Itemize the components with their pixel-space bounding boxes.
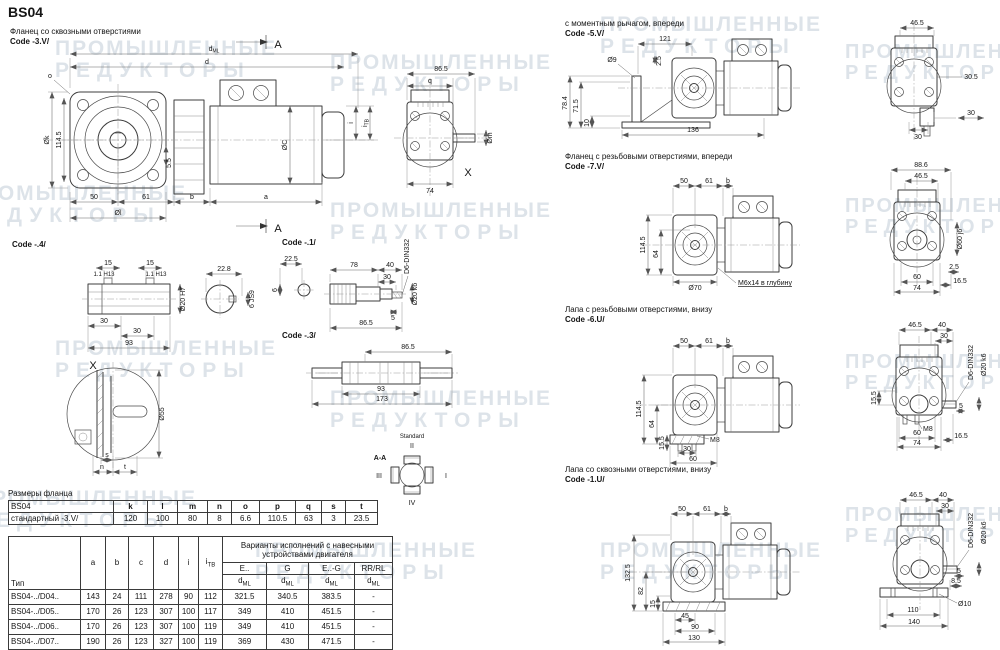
flange-h-o: o [232, 501, 260, 513]
dim-30: 30 [940, 333, 948, 340]
note-m6x14: М6х14 в глубину [738, 279, 792, 287]
cell-i: 90 [179, 589, 199, 604]
drawing-code-4: 15 1.1 H13 15 1.1 H13 30 30 93 Ø20 H7 22… [8, 252, 273, 362]
col-type-header: Тип [9, 537, 81, 590]
dim-6js9: 6 JS9 [249, 290, 256, 308]
dim-d: d [205, 59, 209, 66]
drawing-7v-end: 88.6 46.5 Ø60 j6 2.5 60 16.5 74 [855, 160, 1000, 295]
section-cut-marks [236, 35, 268, 233]
section-5v-title: с моментным рычагом, впереди [565, 19, 684, 29]
dim-86-5: 86.5 [359, 320, 373, 327]
dim-t: t [124, 464, 126, 471]
flange-table-title: Размеры фланца [8, 489, 72, 499]
flange-cell-name: стандартный -3.V/ [9, 513, 114, 525]
dim-15: 15 [650, 600, 657, 608]
detail-x-label: X [464, 167, 472, 179]
flange-h-q: q [296, 501, 322, 513]
cell-i: 100 [179, 604, 199, 619]
section-1u-title: Лапа со сквозными отверстиями, внизу [565, 465, 711, 475]
cell-type: BS04-../D04.. [9, 589, 81, 604]
cell-b: 26 [106, 619, 129, 634]
dim-5: 5 [391, 315, 395, 322]
cell-itb: 117 [199, 604, 223, 619]
table-header-row-1: Тип a b c d i iTB Варианты исполнений с … [9, 537, 393, 563]
dim-15-right: 15 [146, 260, 154, 267]
dim-61: 61 [703, 506, 711, 513]
dim-74: 74 [913, 440, 921, 447]
shaft-end-section [294, 280, 314, 300]
flange-cell-p: 110.5 [260, 513, 296, 525]
cell-g: 340.5 [267, 589, 309, 604]
flange-cell-m: 80 [178, 513, 208, 525]
cell-b: 26 [106, 604, 129, 619]
end-view-7v [890, 178, 944, 288]
aa-cross-view [391, 456, 433, 494]
table-row: BS04-../D06.. 170 26 123 307 100 119 349… [9, 619, 393, 634]
dim-b: b [726, 338, 730, 345]
flange-h-k: k [114, 501, 148, 513]
col-e-header: E.. [223, 563, 267, 575]
dim-50: 50 [680, 178, 688, 185]
dim-30: 30 [683, 446, 691, 453]
cell-a: 170 [81, 604, 106, 619]
dim-m8: M8 [710, 437, 720, 444]
col-e-dml: dML [223, 575, 267, 590]
gearmotor-view-7v [640, 196, 800, 275]
variants-header-line1: Варианты исполнений с навесными [225, 541, 390, 550]
detail-x-label: X [89, 360, 97, 372]
dim-173: 173 [376, 396, 388, 403]
col-d-header: d [154, 537, 179, 590]
dim-m8: M8 [923, 426, 933, 433]
dim-o60j6: Ø60 j6 [957, 229, 964, 250]
dim-o55: Ø55 [159, 407, 166, 420]
gearbox-motor-side-view [46, 80, 380, 194]
flange-cell-t: 23.5 [346, 513, 378, 525]
dim-22-5: 22.5 [284, 256, 298, 263]
dim-15-5: 15.5 [871, 391, 878, 405]
drawing-code-3: 86.5 93 173 [272, 344, 457, 406]
cell-itb: 112 [199, 589, 223, 604]
flange-h-l: l [148, 501, 178, 513]
flange-h-s: s [322, 501, 346, 513]
table-row: BS04-../D05.. 170 26 123 307 100 117 349… [9, 604, 393, 619]
drawing-6u-main: 50 61 b 114.5 64 15.5 M8 30 60 [560, 320, 810, 460]
dim-78-4: 78.4 [562, 96, 569, 110]
cell-itb: 119 [199, 619, 223, 634]
dim-90: 90 [691, 624, 699, 631]
flange-data-row: стандартный -3.V/ 120 100 80 8 6.6 110.5… [9, 513, 378, 525]
dim-46-5: 46.5 [910, 20, 924, 27]
dim-5-5: 5.5 [166, 158, 173, 168]
col-c-header: c [129, 537, 154, 590]
aa-position-2: II [410, 443, 414, 450]
cell-d: 307 [154, 604, 179, 619]
dim-30-b: 30 [133, 328, 141, 335]
flange-h-n: n [208, 501, 232, 513]
dim-15-left: 15 [104, 260, 112, 267]
cell-eg: 451.5 [309, 619, 355, 634]
catalog-page: { "page": {"title": "BS04", "wm1": "ПРОМ… [0, 0, 1000, 647]
dim-93: 93 [125, 340, 133, 347]
dim-15-5: 15.5 [659, 436, 666, 450]
dim-60: 60 [689, 456, 697, 463]
section-1-code: Code -.1/ [282, 238, 316, 248]
cell-eg: 451.5 [309, 604, 355, 619]
col-eg-dml: dML [309, 575, 355, 590]
dim-q: q [428, 78, 432, 85]
dim-6: 6 [272, 288, 279, 292]
dim-ol: Øl [115, 210, 122, 217]
cell-e: 349 [223, 619, 267, 634]
variants-header-line2: устройствами двигателя [225, 550, 390, 559]
cell-a: 143 [81, 589, 106, 604]
cell-rr: - [355, 619, 393, 634]
dim-o20k6: Ø20 k6 [981, 353, 988, 376]
variants-header: Варианты исполнений с навесными устройст… [223, 537, 393, 563]
dim-78: 78 [350, 262, 358, 269]
dim-din332: D6-DIN332 [968, 513, 975, 548]
cell-a: 170 [81, 619, 106, 634]
end-view-3v [394, 78, 488, 196]
flange-h-bs04: BS04 [9, 501, 114, 513]
dim-din332: D6-DIN332 [968, 345, 975, 380]
cell-c: 111 [129, 589, 154, 604]
shaft-section-view [201, 280, 239, 318]
col-rr-header: RR/RL [355, 563, 393, 575]
dim-64: 64 [653, 250, 660, 258]
col-itb-header: iTB [199, 537, 223, 590]
dim-om: Øm [487, 132, 494, 143]
col-rr-dml: dML [355, 575, 393, 590]
col-eg-header: E..-G [309, 563, 355, 575]
dim-130: 130 [688, 635, 700, 642]
dim-50: 50 [680, 338, 688, 345]
x-detail-view [67, 362, 159, 468]
dim-71-5: 71.5 [573, 99, 580, 113]
dim-61: 61 [705, 178, 713, 185]
dim-30-5: 30.5 [964, 74, 978, 81]
col-i-header: i [179, 537, 199, 590]
dim-b: b [724, 506, 728, 513]
dim-o70: Ø70 [688, 285, 701, 292]
gearmotor-view-1u [630, 523, 800, 611]
dim-114-5: 114.5 [640, 236, 647, 253]
dim-93: 93 [377, 386, 385, 393]
drawing-6u-end: 46.5 40 30 D6-DIN332 Ø20 k6 15.5 5 M8 60… [855, 312, 1000, 452]
dim-16-5: 16.5 [954, 433, 968, 440]
section-mark-bottom: A [274, 223, 282, 235]
drawing-1u-end: 46.5 40 30 D6-DIN332 Ø20 k6 5 8.5 Ø10 11… [855, 470, 1000, 645]
dim-40: 40 [939, 492, 947, 499]
dim-140: 140 [908, 619, 920, 626]
col-b-header: b [106, 537, 129, 590]
dim-n: n [100, 464, 104, 471]
dim-10: 10 [584, 119, 591, 127]
dim-a: a [264, 194, 268, 201]
aa-position-3: III [376, 473, 382, 480]
dim-64: 64 [649, 420, 656, 428]
flange-header-row: BS04 k l m n o p q s t [9, 501, 378, 513]
flange-cell-k: 120 [114, 513, 148, 525]
dim-132-5: 132.5 [625, 564, 632, 582]
dim-5: 5 [957, 568, 961, 575]
cell-rr: - [355, 604, 393, 619]
dim-o20k6: Ø20 k6 [412, 283, 419, 306]
dim-110: 110 [907, 607, 918, 614]
col-a-header: a [81, 537, 106, 590]
flange-h-t: t [346, 501, 378, 513]
flange-cell-l: 100 [148, 513, 178, 525]
dim-2-5: 2.5 [656, 56, 663, 66]
col-g-dml: dML [267, 575, 309, 590]
dim-46-5: 46.5 [909, 492, 923, 499]
dim-50: 50 [678, 506, 686, 513]
aa-position-1: I [445, 473, 447, 480]
dim-121: 121 [659, 36, 671, 43]
cell-type: BS04-../D05.. [9, 604, 81, 619]
flange-cell-q: 63 [296, 513, 322, 525]
dim-b: b [726, 178, 730, 185]
flange-table: BS04 k l m n o p q s t стандартный -3.V/… [8, 500, 378, 525]
dim-88-6: 88.6 [914, 162, 928, 169]
drawing-5v-end: 46.5 30.5 30 30 [858, 22, 998, 147]
dim-o9: Ø9 [607, 57, 616, 64]
dim-o20k6: Ø20 k6 [981, 521, 988, 544]
cell-eg: 383.5 [309, 589, 355, 604]
flange-h-m: m [178, 501, 208, 513]
dim-5: 5 [959, 403, 963, 410]
cell-i: 100 [179, 619, 199, 634]
section-4-code: Code -.4/ [12, 240, 46, 250]
section-7v-title: Фланец с резьбовыми отверстиями, впереди [565, 152, 732, 162]
dim-22-8: 22.8 [217, 266, 231, 273]
dim-16-5: 16.5 [953, 278, 967, 285]
torque-arm-gearmotor-view [618, 39, 800, 128]
dim-74: 74 [913, 285, 921, 292]
dim-o10: Ø10 [958, 601, 971, 608]
section-mark-top: A [274, 39, 282, 51]
drawing-code-1: 22.5 6 78 40 30 5 86.5 Ø20 k6 D6-DIN332 [272, 252, 452, 347]
dim-i: i [348, 122, 355, 124]
flange-cell-s: 3 [322, 513, 346, 525]
dim-o20h7: Ø20 H7 [180, 287, 187, 311]
col-g-header: G [267, 563, 309, 575]
hollow-shaft-view [82, 278, 176, 314]
cell-rr: - [355, 589, 393, 604]
cell-e: 321.5 [223, 589, 267, 604]
dim-46-5: 46.5 [914, 173, 928, 180]
aa-label: A-A [374, 455, 386, 462]
dim-82: 82 [638, 587, 645, 595]
dim-b: b [190, 194, 194, 201]
flange-cell-n: 8 [208, 513, 232, 525]
aa-position-4: IV [409, 500, 416, 507]
flange-cell-o: 6.6 [232, 513, 260, 525]
dim-46-5: 46.5 [908, 322, 922, 329]
dim-40: 40 [938, 322, 946, 329]
cell-type: BS04-../D06.. [9, 619, 81, 634]
end-view-6u [892, 336, 956, 440]
dim-s: s [105, 452, 109, 459]
dim-itb: iTB [362, 118, 371, 127]
cell-b: 24 [106, 589, 129, 604]
end-view-5v [887, 24, 941, 140]
dim-61: 61 [142, 194, 150, 201]
drawing-1u-main: 50 61 b 132.5 82 15 45 90 130 [560, 480, 810, 645]
section-6u-title: Лапа с резьбовыми отверстиями, внизу [565, 305, 712, 315]
drawing-aa-section: A-A Standard II III I IV [366, 430, 450, 508]
dim-40: 40 [386, 262, 394, 269]
dim-30: 30 [941, 503, 949, 510]
dim-30: 30 [383, 274, 391, 281]
cell-g: 410 [267, 604, 309, 619]
dim-dml: dML [209, 46, 220, 55]
dim-45: 45 [681, 613, 689, 620]
dim-86-5: 86.5 [401, 344, 415, 351]
cell-d: 278 [154, 589, 179, 604]
dim-11h13-right: 1.1 H13 [145, 272, 167, 278]
end-view-1u [880, 506, 957, 610]
dimensions-table: Тип a b c d i iTB Варианты исполнений с … [8, 536, 393, 650]
page-title: BS04 [8, 4, 43, 20]
cell-g: 410 [267, 619, 309, 634]
drawing-5v-main: 121 Ø9 2.5 78.4 71.5 10 136 [560, 38, 810, 146]
dim-2-5: 2.5 [949, 264, 959, 271]
dim-136: 136 [687, 127, 699, 134]
dim-din332: D6-DIN332 [404, 239, 411, 274]
dim-86-5: 86.5 [434, 66, 448, 73]
dim-61: 61 [705, 338, 713, 345]
cell-e: 349 [223, 604, 267, 619]
dim-30-right: 30 [967, 110, 975, 117]
dim-30-bottom: 30 [914, 134, 922, 141]
table-row: BS04-../D04.. 143 24 111 278 90 112 321.… [9, 589, 393, 604]
dim-8-5: 8.5 [951, 578, 961, 585]
drawing-3v-main: A A o Øk 114.5 dML d ØC i iTB 5.5 50 61 … [40, 34, 510, 234]
aa-standard-label: Standard [400, 434, 424, 440]
drawing-7v-main: 50 61 b 114.5 64 Ø70 М6х14 в глубину [560, 168, 810, 298]
dim-30-a: 30 [100, 318, 108, 325]
cell-d: 307 [154, 619, 179, 634]
drawing-x-detail: X Ø55 s n t [55, 356, 220, 486]
dim-60: 60 [913, 274, 921, 281]
dim-74: 74 [426, 188, 434, 195]
output-shaft-view [324, 284, 408, 304]
dim-114-5: 114.5 [636, 400, 643, 417]
cell-c: 123 [129, 604, 154, 619]
flange-h-p: p [260, 501, 296, 513]
cell-c: 123 [129, 619, 154, 634]
dim-60: 60 [913, 430, 921, 437]
dim-50: 50 [90, 194, 98, 201]
double-shaft-view [306, 362, 458, 384]
dim-oc: ØC [282, 140, 289, 151]
dim-o-leader: o [48, 73, 52, 80]
